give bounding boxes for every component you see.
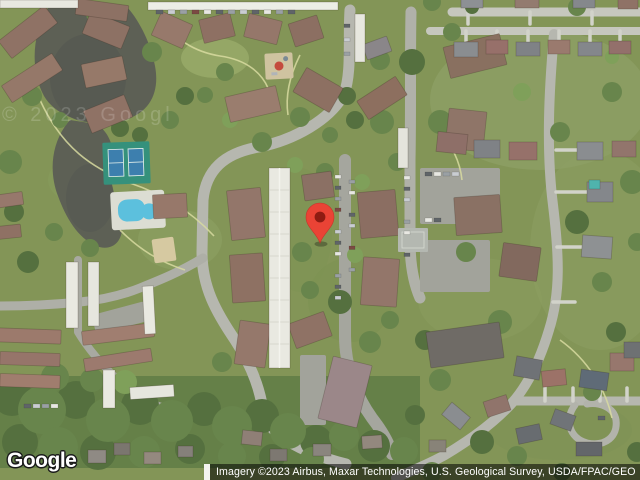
satellite-map-view[interactable]: © 2023 Googl Google Imagery ©2023 Airbus…: [0, 0, 640, 480]
google-logo-link[interactable]: Google: [7, 449, 76, 473]
attribution-left-cap: [204, 464, 210, 480]
attribution-bar: Imagery ©2023 Airbus, Maxar Technologies…: [210, 464, 640, 480]
attribution-text: Imagery ©2023 Airbus, Maxar Technologies…: [216, 466, 636, 478]
map-watermark: © 2023 Googl: [2, 104, 174, 126]
sport-court: [398, 228, 428, 252]
pin-dot: [315, 212, 326, 223]
sand-court: [151, 237, 176, 264]
tennis-courts: [102, 141, 150, 185]
playground: [264, 52, 293, 79]
map-tiles: © 2023 Googl: [0, 0, 640, 480]
